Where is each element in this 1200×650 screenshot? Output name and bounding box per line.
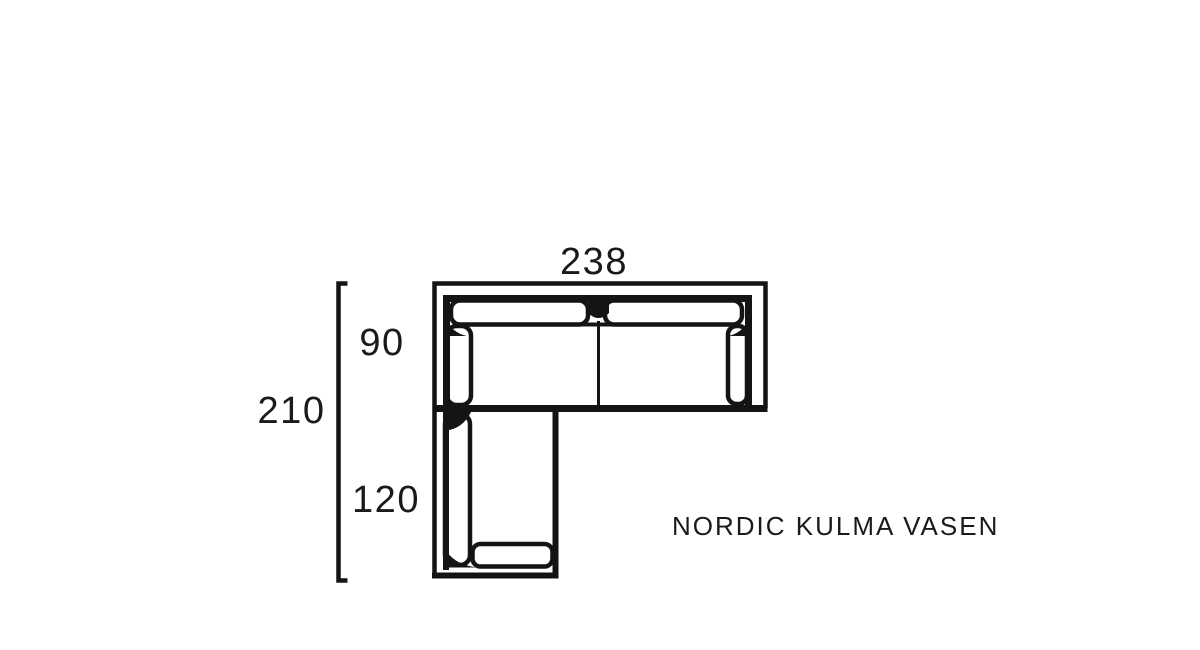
dimension-label-total-depth: 210 [258, 390, 326, 432]
dimension-label-total-width: 238 [560, 241, 628, 283]
dimension-label-sofa-depth: 90 [359, 322, 404, 364]
product-name-label: NORDIC KULMA VASEN [672, 511, 999, 541]
furniture-dimension-diagram: 238 210 90 120 NORDIC KULMA VASEN [0, 0, 1200, 650]
dimension-bracket [339, 284, 348, 581]
junction-shade-chaise-top [444, 412, 471, 431]
armrest-cushion-right [728, 326, 747, 404]
back-cushion-right [605, 301, 742, 325]
back-cushion-left [451, 301, 588, 325]
back-cushion-seam [588, 299, 609, 319]
corner-sofa-plan-drawing: 238 210 90 120 NORDIC KULMA VASEN [0, 0, 1200, 650]
chaise-outer-edge [432, 410, 556, 576]
dimension-label-chaise-depth: 120 [352, 479, 420, 521]
chaise-end-cushion [473, 544, 553, 567]
armrest-cushion-left [447, 326, 471, 405]
